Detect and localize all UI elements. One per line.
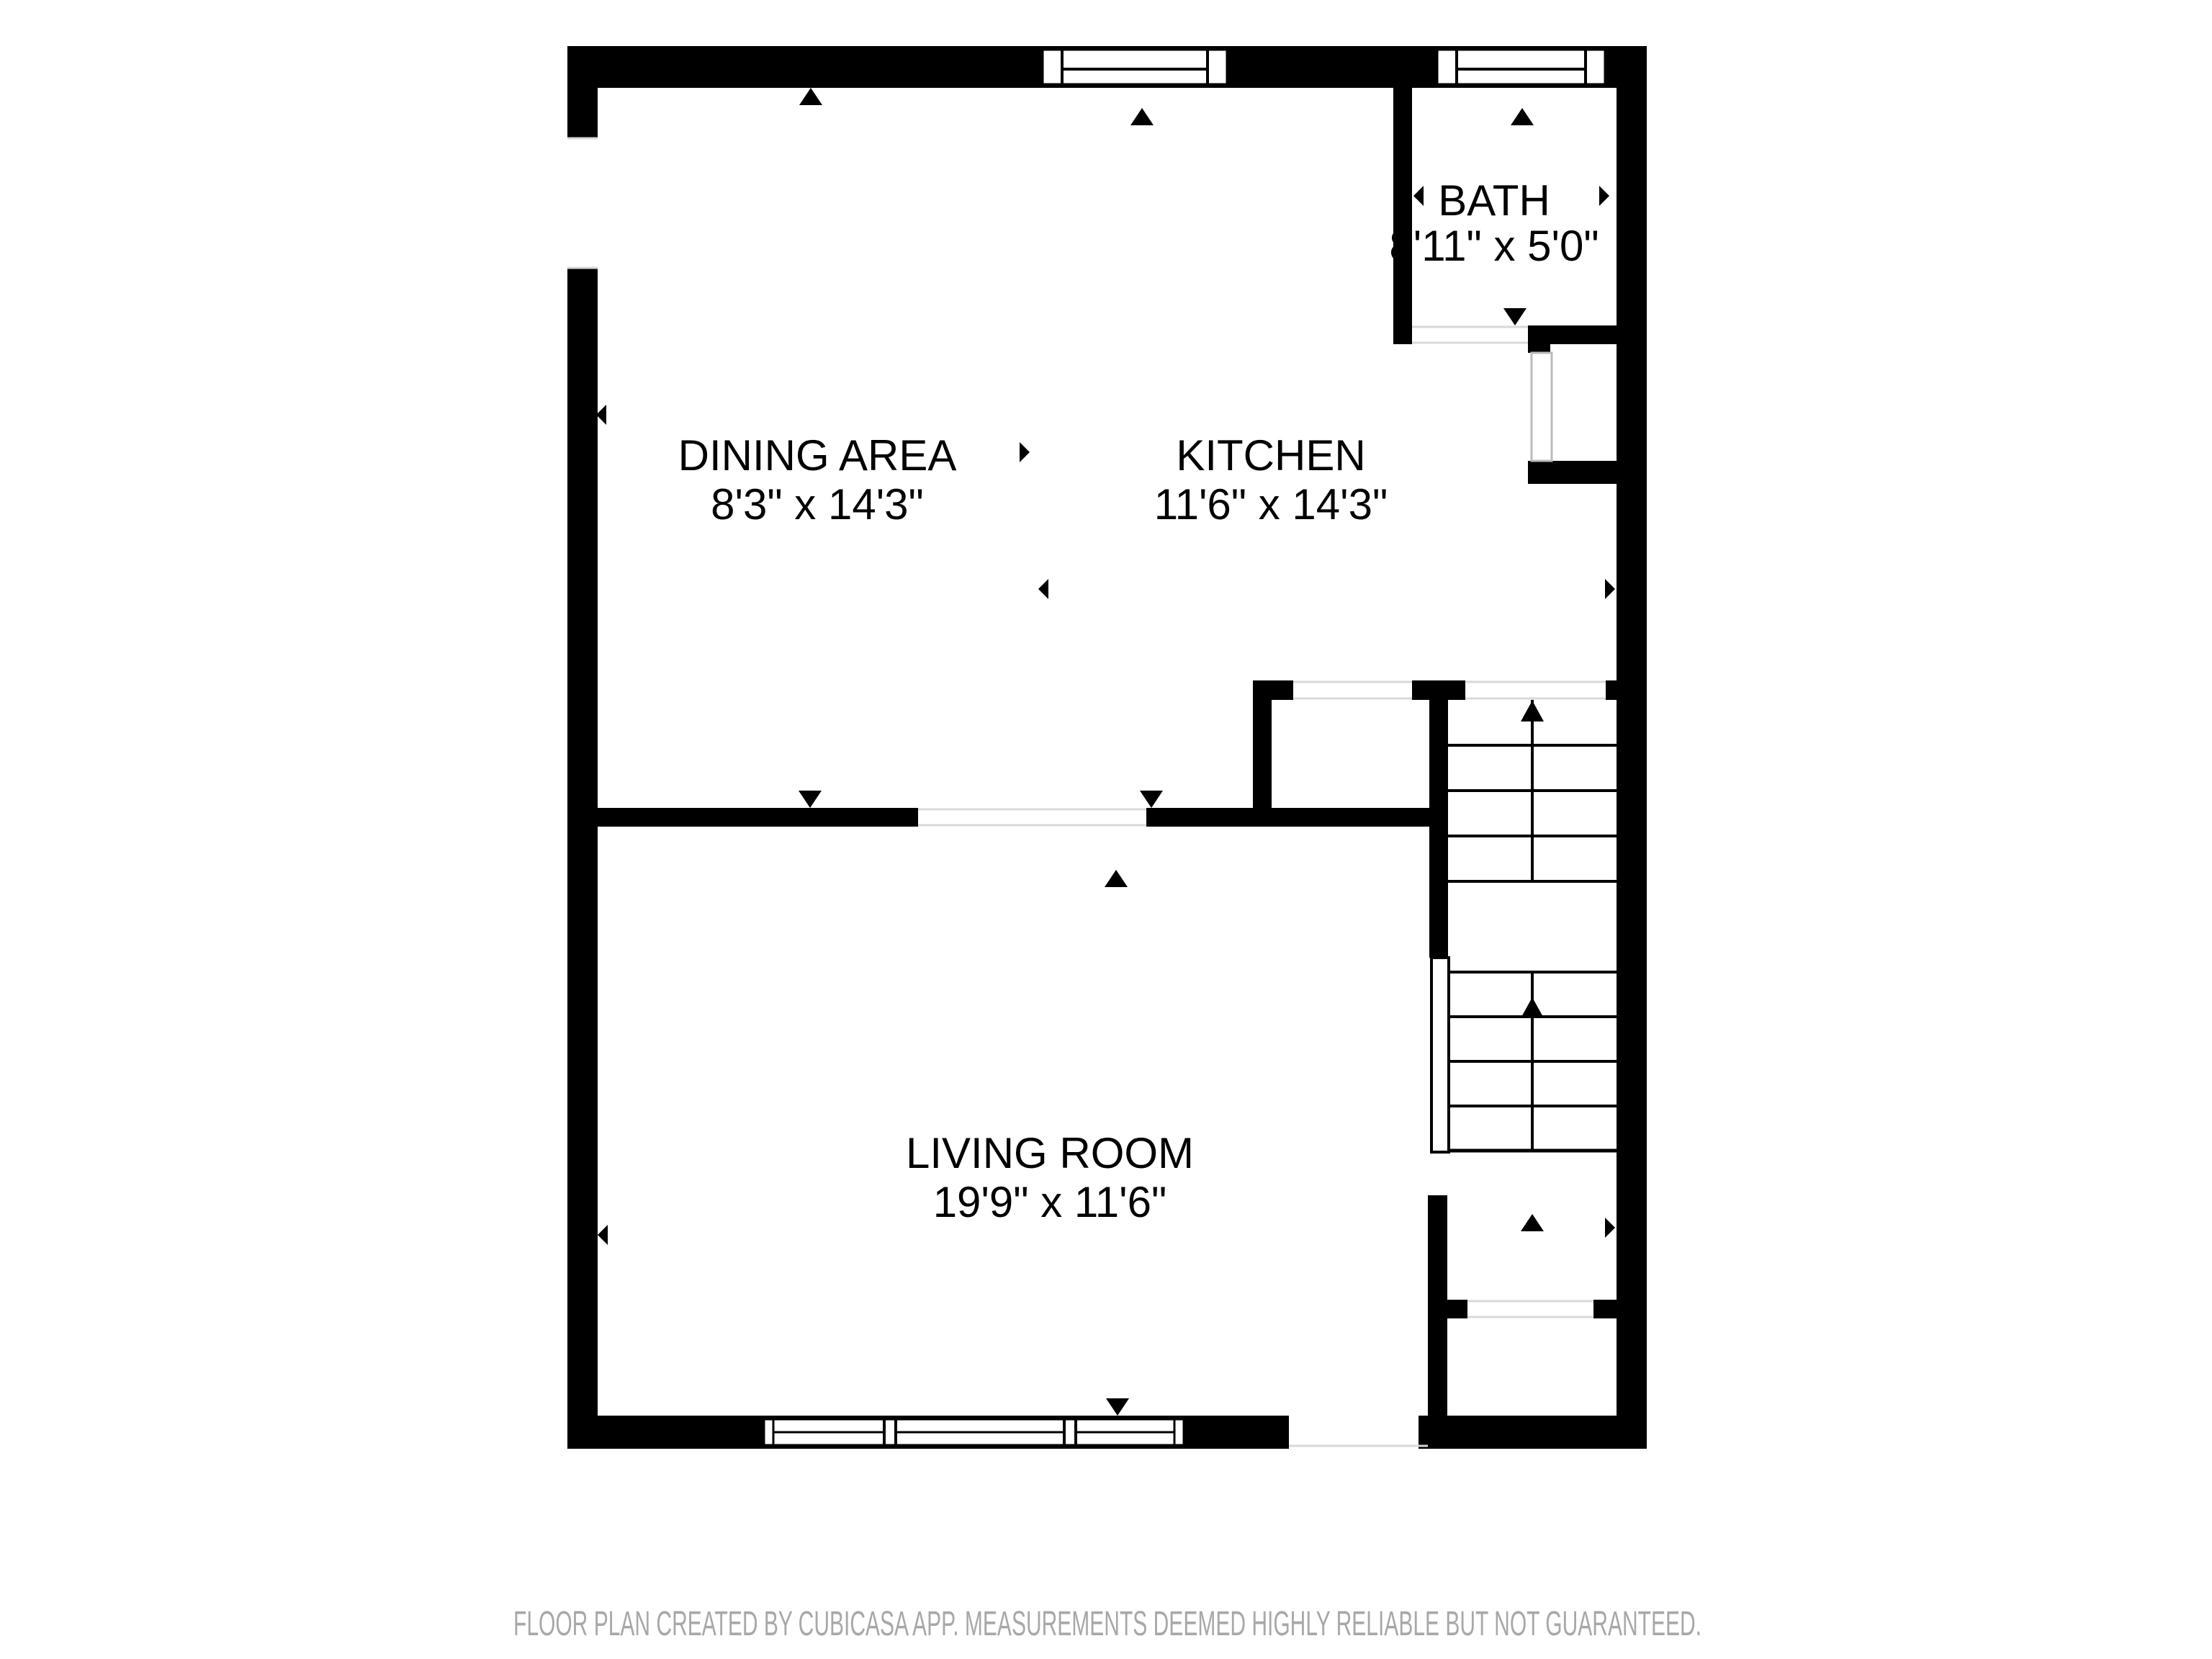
entry-door-opening [1467,1300,1593,1318]
stairs-up-arrow-icon [1521,997,1544,1018]
extent-marker-left-icon [598,1225,608,1245]
wall-niche-bottom [1528,461,1617,484]
wall-vestibule-bottom [1419,1416,1644,1449]
kitchen-dims: 11'6" x 14'3" [1154,480,1388,529]
extent-marker-left-icon [1413,186,1424,206]
footer-disclaimer: FLOOR PLAN CREATED BY CUBICASA APP. MEAS… [513,1605,1701,1643]
extent-marker-right-icon [1020,442,1030,462]
wall-vestibule-top-a [1447,1300,1467,1318]
niche-door-leaf [1532,353,1552,461]
living-room-label: LIVING ROOM [906,1129,1194,1177]
floor-plan-canvas: DINING AREA 8'3" x 14'3" KITCHEN 11'6" x… [0,0,2212,1659]
floor-plan-page: DINING AREA 8'3" x 14'3" KITCHEN 11'6" x… [0,0,2212,1659]
extent-marker-right-icon [1605,579,1615,599]
window-top-bath [1437,49,1606,85]
bath-dims: 8'11" x 5'0" [1389,222,1599,270]
extent-marker-up-icon [1105,870,1128,887]
wall-bath-bottom [1528,325,1647,344]
kitchen-label: KITCHEN [1176,431,1365,480]
living-room-dims: 19'9" x 11'6" [933,1178,1167,1226]
extent-marker-up-icon [799,88,822,105]
wall-bath-left [1393,46,1412,344]
wall-kitchen-living-divider [1146,808,1448,827]
extent-marker-right-icon [1605,1218,1615,1238]
door-swing-marker-icon [1503,308,1527,325]
window-frame [1042,49,1228,85]
stairs-door-opening [1465,680,1606,700]
stair-railing [1431,958,1449,1152]
extent-marker-down-icon [1106,1398,1129,1416]
window-bottom-living [763,1419,1184,1446]
wall-vestibule-top-b [1593,1300,1617,1318]
wall-hall-left [1428,1195,1447,1449]
extent-marker-left-icon [596,405,606,425]
extent-marker-up-icon [1130,108,1154,125]
extent-marker-up-icon [1511,108,1534,125]
living-room-opening [918,808,1146,827]
extent-marker-right-icon [1599,186,1609,206]
extent-marker-down-icon [799,791,822,808]
wall-dining-living-divider [567,808,918,827]
wall-exterior-right [1617,46,1647,1449]
stairs-up-arrow-icon [1521,701,1544,721]
left-wall-opening [567,138,598,268]
window-top-kitchen [1042,49,1228,85]
wall-kitchen-bottom-c [1606,680,1617,700]
closet-door-opening [1293,680,1412,700]
dining-area-dims: 8'3" x 14'3" [711,480,924,529]
extent-marker-down-icon [1140,791,1163,808]
wall-niche-stub [1528,344,1550,353]
dining-area-label: DINING AREA [678,431,957,480]
extent-marker-up-icon [1521,1214,1544,1231]
extent-marker-left-icon [1038,579,1048,599]
staircase [1431,700,1617,1152]
wall-closet-left [1253,680,1272,827]
window-frame [1437,49,1606,85]
bath-label: BATH [1438,176,1550,225]
bath-door-opening [1412,325,1528,344]
